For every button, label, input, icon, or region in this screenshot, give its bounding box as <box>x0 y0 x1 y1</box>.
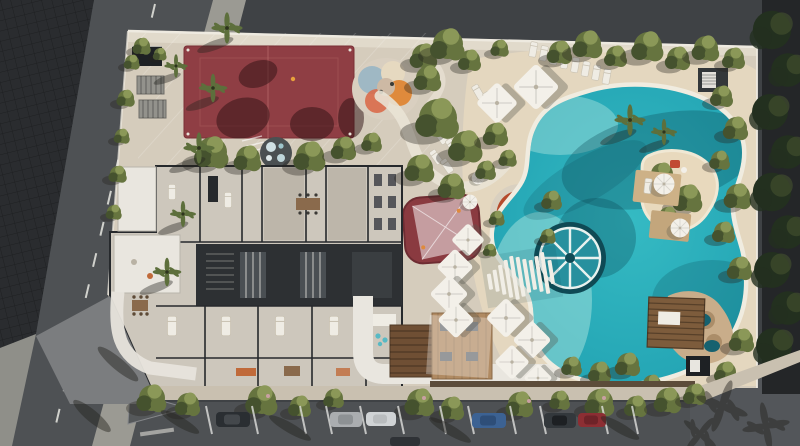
bed <box>221 316 230 336</box>
parked-car <box>216 412 250 427</box>
parked-car <box>544 413 576 428</box>
parked-car <box>366 412 396 426</box>
play-equipment <box>390 82 394 86</box>
shed-panel <box>690 360 700 372</box>
parked-car <box>390 437 420 446</box>
grotto-pool <box>704 340 720 352</box>
bed <box>167 316 176 336</box>
wheel-hub <box>565 253 575 263</box>
kitchen-block <box>208 176 218 202</box>
bed <box>329 316 338 336</box>
pergola-deck <box>390 325 432 377</box>
plaza-dining-set <box>132 295 149 315</box>
bed <box>275 316 284 336</box>
site-plan-render: Aerial 3D architectural render of a resi… <box>0 0 800 446</box>
balcony-sofa <box>236 368 256 376</box>
parked-car <box>330 412 362 427</box>
bed <box>169 185 176 200</box>
person-on-court <box>291 77 295 81</box>
cabana-pergola <box>647 297 705 349</box>
balcony-table <box>284 366 300 376</box>
parked-car <box>472 413 506 428</box>
terrace-furniture <box>147 273 153 279</box>
cabana-bed <box>658 311 680 325</box>
balcony-sofa <box>336 368 350 376</box>
aerial-render-canvas <box>0 0 800 446</box>
stairs <box>702 72 716 88</box>
terrace-lounge <box>372 314 396 326</box>
island-cabana-red <box>670 160 680 168</box>
dining-table <box>296 198 320 210</box>
terrace-furniture <box>131 259 137 265</box>
room <box>328 168 366 240</box>
bed <box>225 193 232 208</box>
lobby <box>352 252 392 298</box>
island-umbrella <box>681 167 687 173</box>
